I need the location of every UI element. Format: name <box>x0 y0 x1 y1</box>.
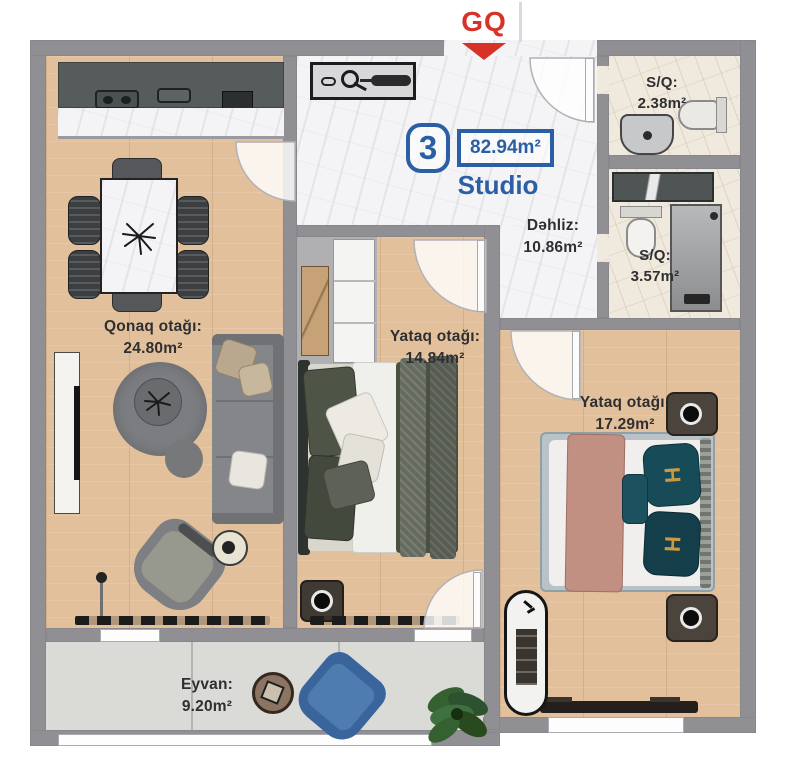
bath-vanity <box>612 172 714 202</box>
background-cutout <box>500 733 786 768</box>
dining-chair <box>68 250 101 299</box>
floor-lamp <box>96 572 108 618</box>
ottoman <box>165 440 203 478</box>
wall-hall-bath <box>597 56 609 318</box>
unit-badge: 3 82.94m² <box>406 123 554 173</box>
kitchen-worktop <box>58 108 284 139</box>
unit-number-badge: 3 <box>406 123 450 173</box>
bed-cushion <box>622 474 648 524</box>
bathroom1-door-opening <box>597 66 609 94</box>
bed-double: H H <box>540 432 715 592</box>
toilet-tank <box>620 206 662 218</box>
wall-between-baths <box>609 155 740 169</box>
wall-bedroom2-top <box>500 318 740 330</box>
wall-bedroom1-right <box>484 225 500 730</box>
bedroom2-door-leaf <box>572 331 580 399</box>
toilet-tank <box>716 97 727 133</box>
balcony-door-leaf <box>473 572 481 628</box>
dresser <box>540 701 698 713</box>
dining-chair <box>68 196 101 245</box>
balcony-window-bottom <box>58 734 432 746</box>
logo-text: GQ <box>461 6 507 37</box>
entrance-arrow-icon <box>462 43 506 60</box>
dining-chair <box>176 196 209 245</box>
stove-icon <box>95 90 139 109</box>
wall-outer-top <box>30 40 756 56</box>
wall-outer-right <box>740 40 756 733</box>
room-label-bathroom2: S/Q: 3.57m² <box>610 245 700 287</box>
decor-tray-icon <box>371 75 411 86</box>
logo: GQ <box>444 6 524 38</box>
balcony-window-left <box>100 629 160 642</box>
radiator <box>75 616 270 625</box>
throw-blanket <box>430 356 456 559</box>
tall-cabinet <box>504 590 548 716</box>
decor-item <box>321 77 336 86</box>
room-label-hallway: Dəhliz: 10.86m² <box>495 215 611 258</box>
unit-type-label: Studio <box>450 170 546 201</box>
floor-plan: H H <box>0 0 786 768</box>
nightstand <box>666 594 718 642</box>
dining-chair <box>176 250 209 299</box>
wardrobe-door <box>301 266 329 356</box>
wall-bedroom1-top <box>297 225 487 237</box>
console-table <box>310 62 416 100</box>
sofa-pillow <box>237 361 274 398</box>
coffee-table <box>134 378 182 426</box>
room-label-balcony: Eyvan: 9.20m² <box>148 674 266 717</box>
bathroom-sink <box>620 114 674 155</box>
room-label-bedroom1: Yataq otağı: 14.84m² <box>364 326 506 369</box>
room-label-bathroom1: S/Q: 2.38m² <box>614 72 710 114</box>
bedroom2-window-bottom <box>548 717 684 733</box>
bed-double <box>298 360 458 555</box>
room-label-living: Qonaq otağı: 24.80m² <box>82 316 224 359</box>
monogram-letter: H <box>658 466 685 484</box>
wall-outer-left <box>30 40 46 746</box>
table-lamp-icon <box>680 607 702 629</box>
unit-area-badge: 82.94m² <box>457 129 554 167</box>
sink-icon <box>157 88 191 103</box>
entrance-door-leaf <box>585 58 594 122</box>
sofa-pillow <box>228 450 269 491</box>
wall-kitchen-hall <box>283 56 297 628</box>
monogram-pillow: H <box>642 442 702 508</box>
dining-table <box>100 178 178 294</box>
blanket-pink <box>565 434 626 593</box>
room-label-bedroom2: Yataq otağı: 17.29m² <box>554 392 696 435</box>
bedroom1-door-leaf <box>477 240 485 312</box>
side-table <box>212 530 248 566</box>
table-lamp-icon <box>311 590 333 612</box>
throw-blanket <box>400 358 426 557</box>
balcony-window-right <box>414 629 472 642</box>
monogram-pillow: H <box>642 511 701 578</box>
radiator <box>310 616 460 625</box>
headboard-rail <box>700 438 711 588</box>
monogram-letter: H <box>659 535 686 552</box>
tv-icon <box>74 386 80 480</box>
